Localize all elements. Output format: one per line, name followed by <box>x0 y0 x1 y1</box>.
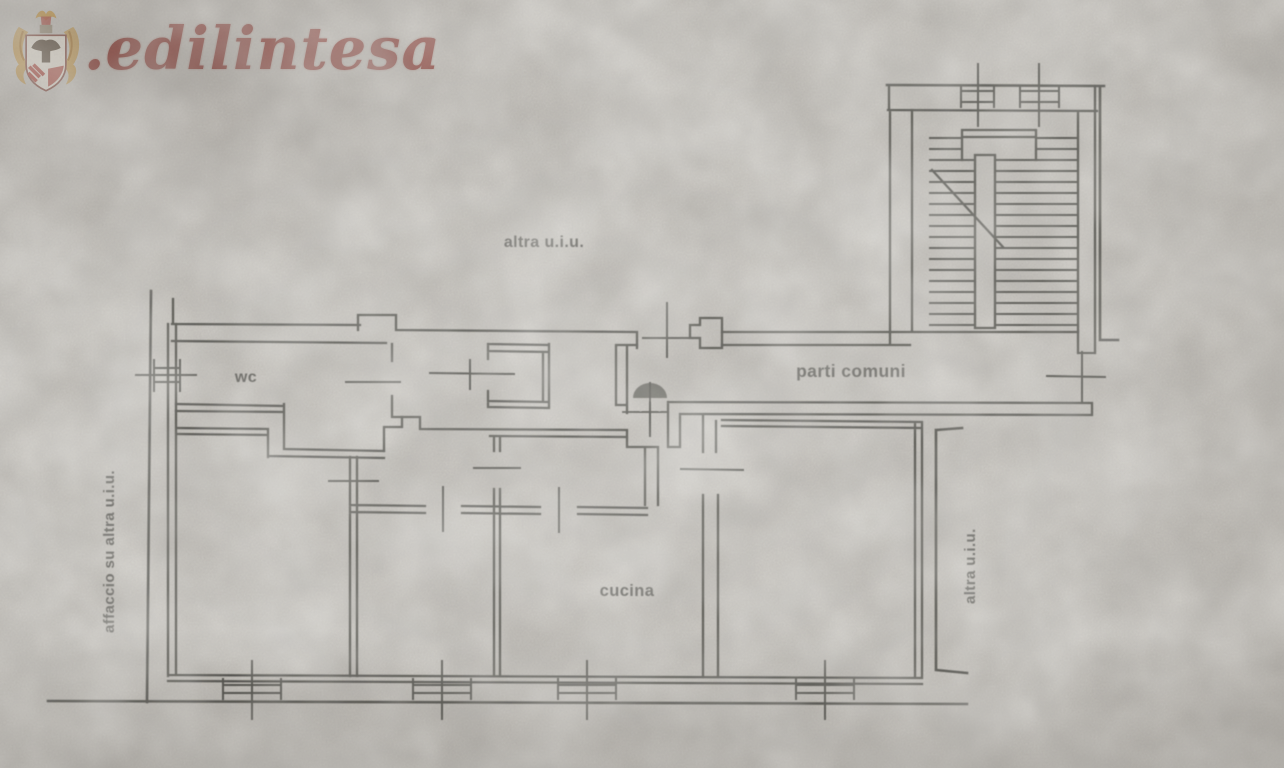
stair-treads <box>930 138 1078 325</box>
south-window-symbol-2 <box>413 661 471 719</box>
stair-window-symbol-1 <box>961 64 994 126</box>
wc-room-walls <box>176 344 402 458</box>
corridor-walls <box>616 332 1092 447</box>
site-boundary-lines <box>48 85 1118 704</box>
storage-room-walls <box>488 344 549 408</box>
south-window-symbol-4 <box>796 661 854 719</box>
label-wc: wc <box>234 369 257 386</box>
label-other-unit-top: altra u.i.u. <box>504 234 584 251</box>
south-window-symbol-1 <box>223 661 281 719</box>
wc-window-symbol <box>136 360 196 391</box>
storage-door-mark <box>430 360 514 389</box>
corridor-entry-pillar <box>690 318 722 348</box>
stairwell <box>888 86 1097 353</box>
floor-plan-photo: .edilintesa <box>0 0 1284 768</box>
stairwell-walls <box>888 86 1097 353</box>
interior-door-marks <box>329 468 743 532</box>
east-door-mark <box>1047 352 1105 402</box>
corridor-entry-door-mark <box>643 303 690 357</box>
floor-plan-drawing: altra u.i.u. wc parti comuni cucina affa… <box>0 0 1284 768</box>
room-divider-walls <box>350 415 718 677</box>
label-kitchen: cucina <box>600 582 655 600</box>
south-window-symbol-3 <box>558 661 616 719</box>
north-dividing-wall <box>172 299 637 348</box>
label-facing-other-unit: affaccio su altra u.i.u. <box>101 470 118 633</box>
label-common-parts: parti comuni <box>796 361 906 381</box>
stair-window-symbol-2 <box>1020 64 1059 126</box>
lobby-walls <box>384 417 658 505</box>
entrance-door-swing-icon <box>623 383 668 436</box>
label-other-unit-right: altra u.i.u. <box>962 528 979 604</box>
